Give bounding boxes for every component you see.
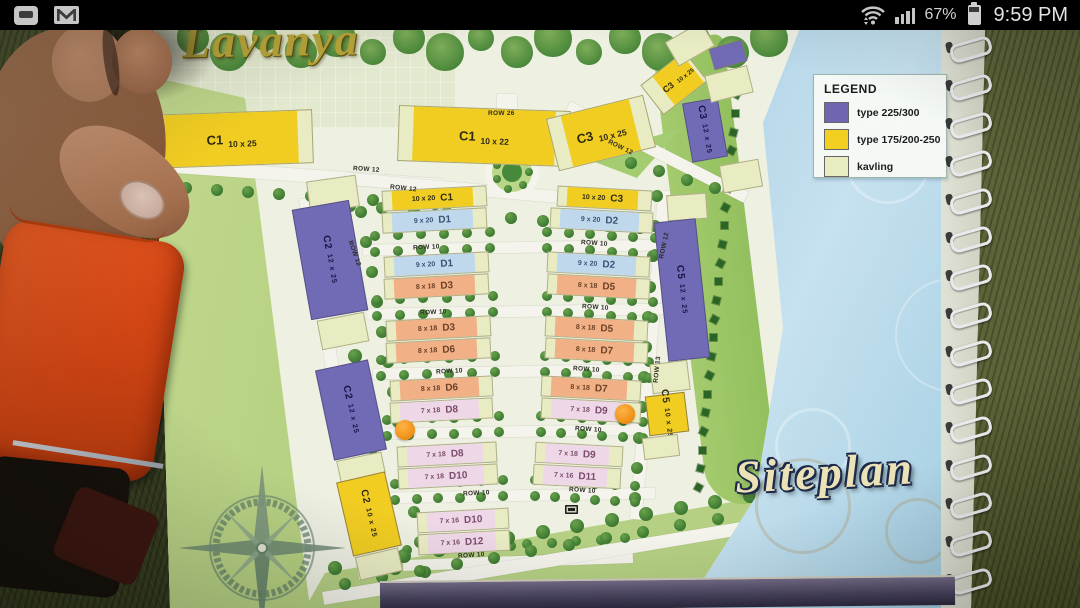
road-label: ROW 10	[436, 367, 463, 375]
notification-icons	[14, 6, 79, 25]
orange-dot-marker	[615, 404, 635, 424]
tree-marker	[563, 539, 575, 551]
tree-marker	[488, 552, 500, 564]
plan-block-kavling	[642, 434, 680, 460]
road-label: ROW 10	[413, 243, 440, 251]
tree-marker	[630, 481, 640, 491]
signal-strength-icon	[895, 7, 915, 24]
page-caption: Siteplan	[734, 441, 916, 503]
tree-marker	[472, 428, 482, 438]
tree-marker	[490, 351, 500, 361]
tree-marker	[366, 266, 378, 278]
tree-marker	[556, 428, 566, 438]
plan-block-kavling	[666, 193, 708, 222]
tree-marker	[525, 168, 533, 176]
legend-swatch-type-175-200-250	[824, 129, 849, 150]
tree-marker	[600, 532, 612, 544]
road	[363, 239, 673, 255]
tree-marker	[519, 181, 527, 189]
legend-swatch-type-225-300	[824, 102, 849, 123]
tree-marker	[412, 494, 422, 504]
entrance-marker-icon	[565, 505, 578, 514]
legend-swatch-kavling	[824, 156, 849, 177]
plan-block-C1: C110 x 22	[397, 105, 571, 167]
tree-marker	[637, 526, 649, 538]
tree-marker	[653, 165, 665, 177]
system-status-icons: 67% 9:59 PM	[860, 3, 1068, 27]
hedge-marker	[696, 465, 704, 473]
tree-marker	[485, 227, 495, 237]
tree-marker	[372, 311, 382, 321]
tree-marker	[712, 513, 724, 525]
photo-scene: C110 x 25C110 x 22C310 x 25C310 x 25C312…	[0, 0, 1080, 608]
tree-marker	[494, 411, 504, 421]
tree-marker	[570, 519, 584, 533]
tree-marker	[590, 495, 600, 505]
battery-icon	[968, 5, 981, 25]
plan-block-D10: 7 x 18D10	[398, 463, 499, 489]
tree-marker	[542, 227, 552, 237]
road-label: ROW 10	[463, 489, 490, 497]
bbm-icon	[14, 6, 38, 25]
tree-marker	[505, 212, 517, 224]
battery-percent: 67%	[924, 6, 956, 24]
tree-marker	[498, 475, 508, 485]
hedge-marker	[732, 110, 739, 117]
legend-item: type 225/300	[824, 102, 946, 123]
road-label: ROW 26	[488, 110, 515, 117]
tree-marker	[550, 492, 560, 502]
road-label: ROW 10	[420, 308, 447, 316]
tree-marker	[585, 229, 595, 239]
tree-marker	[360, 39, 386, 65]
hedge-marker	[729, 128, 737, 136]
plan-block-D1: 9 x 20D1	[382, 207, 488, 233]
tree-marker	[564, 228, 574, 238]
tree-marker	[273, 188, 285, 200]
plan-block-D11: 7 x 16D11	[533, 464, 622, 490]
tree-marker	[530, 491, 540, 501]
booklet-bottom-edge	[380, 575, 955, 608]
legend-box: LEGEND type 225/300 type 175/200-250 kav…	[813, 74, 947, 178]
tree-marker	[376, 355, 386, 365]
compass-rose-icon	[180, 466, 345, 608]
tree-marker	[536, 525, 550, 539]
hedge-marker	[699, 447, 706, 454]
wifi-icon	[860, 3, 886, 27]
legend-item: kavling	[824, 156, 946, 177]
tree-marker	[426, 33, 464, 71]
tree-marker	[674, 501, 688, 515]
legend-heading: LEGEND	[824, 82, 946, 96]
tree-marker	[370, 247, 380, 257]
tree-marker	[498, 491, 508, 501]
tree-marker	[376, 371, 386, 381]
hedge-marker	[721, 222, 728, 229]
hedge-marker	[718, 240, 726, 248]
tree-marker	[631, 462, 643, 474]
tree-marker	[494, 427, 504, 437]
tree-marker	[372, 295, 382, 305]
tree-marker	[709, 182, 721, 194]
tree-marker	[547, 538, 557, 548]
tree-marker	[570, 493, 580, 503]
plan-block-D7: 8 x 18D7	[545, 337, 649, 363]
tree-marker	[630, 497, 640, 507]
tree-marker	[449, 429, 459, 439]
tree-marker	[537, 215, 549, 227]
siteplan-page: C110 x 25C110 x 22C310 x 25C310 x 25C312…	[95, 28, 1015, 608]
tree-marker	[501, 36, 533, 68]
tree-marker	[355, 206, 367, 218]
tree-marker	[610, 496, 620, 506]
tree-marker	[370, 231, 380, 241]
hedge-marker	[704, 391, 711, 398]
legend-item: type 175/200-250	[824, 129, 946, 150]
clock: 9:59 PM	[994, 4, 1068, 27]
hedge-marker	[715, 278, 722, 285]
android-status-bar[interactable]: 67% 9:59 PM	[0, 0, 1080, 30]
tree-marker	[648, 313, 658, 323]
tree-marker	[504, 185, 512, 193]
tree-marker	[488, 291, 498, 301]
orange-dot-marker	[395, 420, 415, 440]
tree-marker	[576, 39, 602, 65]
plan-block-D9: 7 x 18D9	[535, 442, 624, 468]
tree-marker	[536, 427, 546, 437]
plan-block-C1: C110 x 25	[149, 109, 314, 169]
tree-marker	[399, 370, 409, 380]
tree-marker	[620, 533, 630, 543]
plan-block-kavling	[719, 159, 763, 194]
tree-marker	[681, 174, 693, 186]
tree-marker	[648, 297, 658, 307]
tree-marker	[618, 432, 628, 442]
tree-marker	[607, 231, 617, 241]
tree-marker	[651, 190, 663, 202]
plan-block-D5: 8 x 18D5	[547, 273, 651, 299]
hedge-marker	[694, 483, 703, 492]
tree-marker	[625, 157, 637, 169]
gmail-icon	[54, 6, 79, 24]
hedge-marker	[710, 334, 717, 341]
plan-block-C5: C510 x 25	[645, 392, 690, 437]
tree-marker	[414, 565, 426, 577]
tree-marker	[605, 513, 619, 527]
